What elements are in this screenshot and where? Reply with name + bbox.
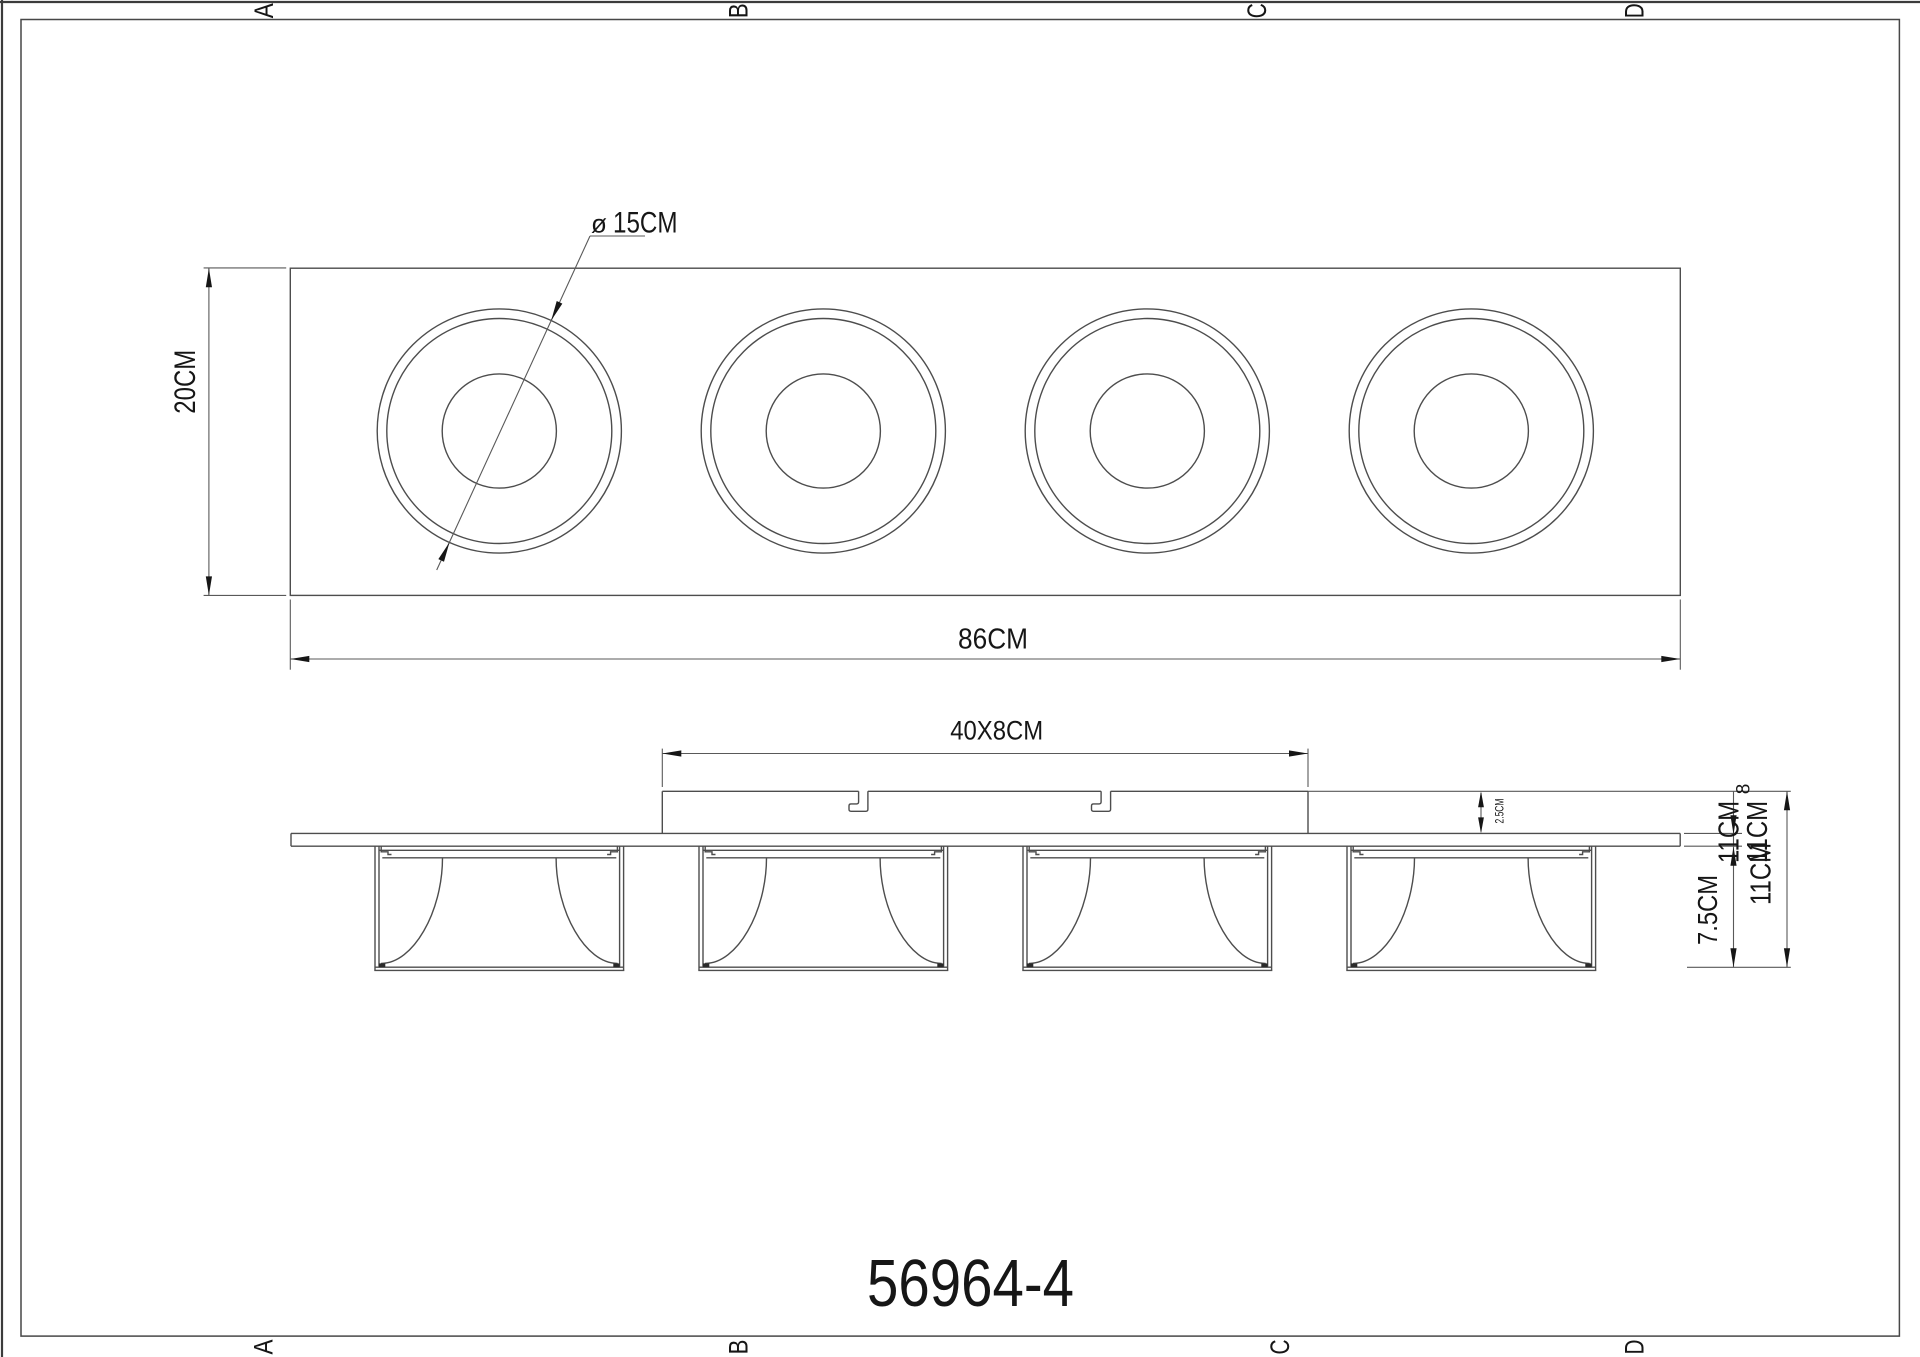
svg-text:11CM: 11CM <box>1746 843 1778 905</box>
svg-text:A: A <box>249 3 279 18</box>
svg-text:7.5CM: 7.5CM <box>1692 875 1723 945</box>
svg-text:2.5CM: 2.5CM <box>1493 798 1507 823</box>
svg-text:A: A <box>248 1340 278 1355</box>
svg-text:56964-4: 56964-4 <box>867 1246 1074 1321</box>
svg-text:86CM: 86CM <box>958 623 1028 655</box>
svg-text:C: C <box>1265 1340 1295 1355</box>
svg-text:B: B <box>723 1340 753 1355</box>
svg-text:D: D <box>1619 3 1649 18</box>
svg-text:15CM: 15CM <box>613 207 678 240</box>
svg-text:D: D <box>1620 1340 1650 1355</box>
svg-text:C: C <box>1242 3 1272 18</box>
svg-text:20CM: 20CM <box>169 350 202 414</box>
svg-text:ø: ø <box>591 209 607 239</box>
svg-text:8: 8 <box>1734 784 1755 795</box>
svg-text:40X8CM: 40X8CM <box>950 716 1043 746</box>
svg-text:11CM: 11CM <box>1714 801 1746 863</box>
svg-text:B: B <box>724 3 754 18</box>
